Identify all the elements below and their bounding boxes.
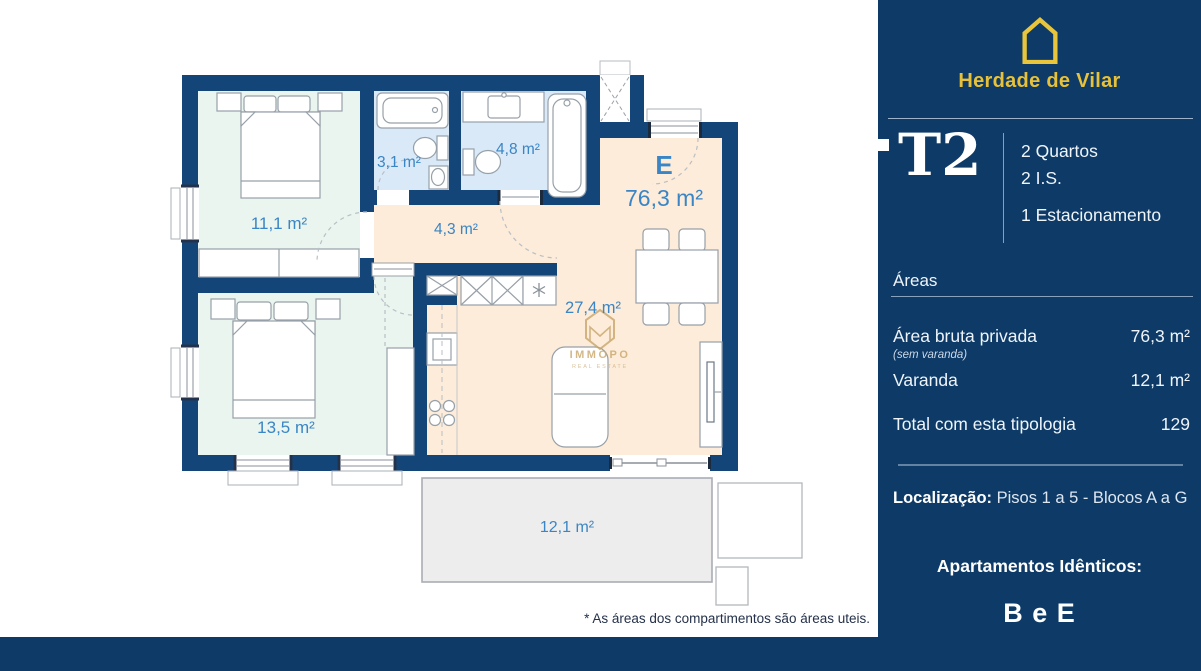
mattress bbox=[233, 321, 315, 418]
hall-floor-2 bbox=[557, 263, 600, 276]
bidet-bowl bbox=[432, 169, 445, 186]
bathtub-2-inner bbox=[553, 99, 581, 192]
door-jamb-tick bbox=[648, 122, 651, 138]
panel-divider-top bbox=[888, 118, 1193, 119]
panel-notch bbox=[878, 139, 889, 151]
window-frame-tick bbox=[338, 455, 341, 471]
dining-table bbox=[636, 250, 718, 303]
info-panel: Herdade de Vilar T2 2 Quartos 2 I.S. 1 E… bbox=[878, 0, 1201, 671]
nightstand bbox=[316, 299, 340, 319]
chair bbox=[679, 229, 705, 251]
floor-plan: IMMOPO REAL ESTATE 11,1 m² 3,1 m² 4,8 m²… bbox=[0, 0, 878, 671]
neighbor-balcony bbox=[718, 483, 802, 558]
label-hall: 4,3 m² bbox=[434, 221, 478, 238]
area-row-value: 12,1 m² bbox=[1131, 370, 1190, 391]
wall-hall-south bbox=[413, 263, 557, 276]
identical-heading: Apartamentos Idênticos: bbox=[878, 556, 1201, 577]
feature-bedrooms: 2 Quartos bbox=[1021, 141, 1161, 162]
chair bbox=[679, 303, 705, 325]
shaft bbox=[600, 61, 630, 122]
window-sill-2 bbox=[171, 348, 180, 397]
unit-divider bbox=[1003, 133, 1004, 243]
wall-bath-divider bbox=[449, 91, 461, 205]
window-frame-tick bbox=[290, 455, 293, 471]
sofa-body bbox=[552, 347, 608, 447]
pillow bbox=[278, 96, 310, 112]
chair bbox=[643, 303, 669, 325]
window-sill-1 bbox=[171, 188, 180, 239]
pillow bbox=[244, 96, 276, 112]
nightstand bbox=[211, 299, 235, 319]
window-left-1 bbox=[181, 185, 199, 242]
neighbor-slab bbox=[716, 567, 748, 605]
wall-bath2-right bbox=[586, 75, 600, 205]
shaft-top bbox=[600, 61, 630, 75]
area-row-value: 76,3 m² bbox=[1131, 326, 1190, 347]
area-row-note: (sem varanda) bbox=[893, 349, 967, 361]
wall-bedrooms-divider bbox=[198, 277, 374, 293]
watermark-line1: IMMOPO bbox=[570, 349, 631, 361]
hall-floor bbox=[374, 205, 600, 263]
watermark-line2: REAL ESTATE bbox=[572, 364, 628, 370]
tv-screen bbox=[707, 362, 714, 422]
panel-divider-middle bbox=[898, 464, 1183, 466]
label-unit-area: 76,3 m² bbox=[625, 185, 703, 211]
brand-house-icon bbox=[1018, 16, 1062, 64]
label-balcony: 12,1 m² bbox=[540, 519, 595, 536]
wall-entry-right bbox=[698, 122, 738, 138]
toilet-tank bbox=[437, 136, 448, 160]
mattress bbox=[241, 112, 320, 198]
door-jamb-tick bbox=[609, 457, 612, 469]
location-value: Pisos 1 a 5 - Blocos A a G bbox=[997, 489, 1188, 507]
area-row-label: Total com esta tipologia bbox=[893, 414, 1076, 435]
location-line: Localização: Pisos 1 a 5 - Blocos A a G bbox=[893, 489, 1187, 508]
feature-bathrooms: 2 I.S. bbox=[1021, 168, 1161, 189]
tub-tap bbox=[564, 100, 570, 106]
window-frame-tick bbox=[181, 398, 199, 401]
label-bathroom-2: 4,8 m² bbox=[496, 141, 540, 158]
wall-top bbox=[182, 75, 596, 91]
stove-burner bbox=[430, 415, 441, 426]
pillow bbox=[274, 302, 308, 320]
wardrobe-1 bbox=[199, 249, 359, 277]
balcony bbox=[422, 478, 802, 605]
window-bottom-1 bbox=[234, 455, 292, 471]
window-sill-3 bbox=[228, 471, 298, 485]
chair bbox=[643, 229, 669, 251]
unit-features: 2 Quartos 2 I.S. 1 Estacionamento bbox=[1021, 141, 1161, 226]
window-sill-4 bbox=[332, 471, 402, 485]
bedroom-2-passage bbox=[374, 276, 415, 293]
label-kitchen-living: 27,4 m² bbox=[565, 299, 621, 317]
sofa bbox=[552, 347, 608, 447]
window-frame-tick bbox=[394, 455, 397, 471]
stove-burner bbox=[430, 401, 441, 412]
unit-type: T2 bbox=[898, 126, 982, 184]
wall-left bbox=[182, 75, 198, 471]
area-row-label: Varanda bbox=[893, 370, 958, 391]
slider-handle bbox=[657, 459, 666, 466]
wall-cabinet-nook bbox=[427, 295, 457, 305]
entry-sill bbox=[647, 109, 701, 121]
nightstand bbox=[318, 93, 342, 111]
identical-value: B e E bbox=[878, 598, 1201, 629]
entry-door bbox=[649, 122, 701, 138]
flyer-page: IMMOPO REAL ESTATE 11,1 m² 3,1 m² 4,8 m²… bbox=[0, 0, 1201, 671]
pillow bbox=[237, 302, 271, 320]
tub-drain bbox=[433, 108, 438, 113]
wall-entry-left bbox=[586, 122, 652, 138]
window-bottom-2 bbox=[338, 455, 396, 471]
wall-kitchen-west bbox=[413, 263, 427, 471]
door-jamb-tick bbox=[540, 190, 543, 205]
area-row: Área bruta privada 76,3 m² bbox=[893, 326, 1190, 347]
area-row: Varanda 12,1 m² bbox=[893, 370, 1190, 391]
window-frame-tick bbox=[181, 345, 199, 348]
stove-burner bbox=[444, 401, 455, 412]
door-jamb-tick bbox=[708, 457, 711, 469]
stove-burner bbox=[444, 415, 455, 426]
bottom-bar bbox=[0, 637, 878, 671]
wardrobe-2 bbox=[387, 348, 414, 455]
brand-name: Herdade de Vilar bbox=[878, 70, 1201, 93]
area-row: Total com esta tipologia 129 bbox=[893, 414, 1190, 435]
bathroom-1-door bbox=[377, 190, 409, 205]
label-unit-letter: E bbox=[655, 150, 672, 180]
area-row-label: Área bruta privada bbox=[893, 326, 1037, 347]
window-frame-tick bbox=[181, 240, 199, 243]
window-frame-tick bbox=[234, 455, 237, 471]
label-bathroom-1: 3,1 m² bbox=[377, 154, 421, 171]
areas-heading: Áreas bbox=[893, 271, 937, 291]
feature-parking: 1 Estacionamento bbox=[1021, 205, 1161, 226]
door-jamb-tick bbox=[699, 122, 702, 138]
areas-underline bbox=[891, 296, 1193, 297]
slider-handle bbox=[613, 459, 622, 466]
tv-unit bbox=[700, 342, 722, 447]
sink-tap bbox=[502, 93, 506, 97]
label-bedroom-1: 11,1 m² bbox=[251, 214, 308, 233]
label-bedroom-2: 13,5 m² bbox=[257, 418, 315, 437]
location-label: Localização: bbox=[893, 489, 992, 507]
wall-right bbox=[722, 122, 738, 471]
footnote: * As áreas dos compartimentos são áreas … bbox=[584, 611, 870, 626]
area-row-value: 129 bbox=[1161, 414, 1190, 435]
window-left-2 bbox=[181, 345, 199, 400]
brand-block: Herdade de Vilar bbox=[878, 16, 1201, 93]
sink-basin bbox=[488, 96, 520, 118]
nightstand bbox=[217, 93, 241, 111]
toilet-tank-2 bbox=[463, 149, 474, 175]
bedroom-1-door bbox=[360, 212, 374, 258]
window-frame-tick bbox=[181, 185, 199, 188]
